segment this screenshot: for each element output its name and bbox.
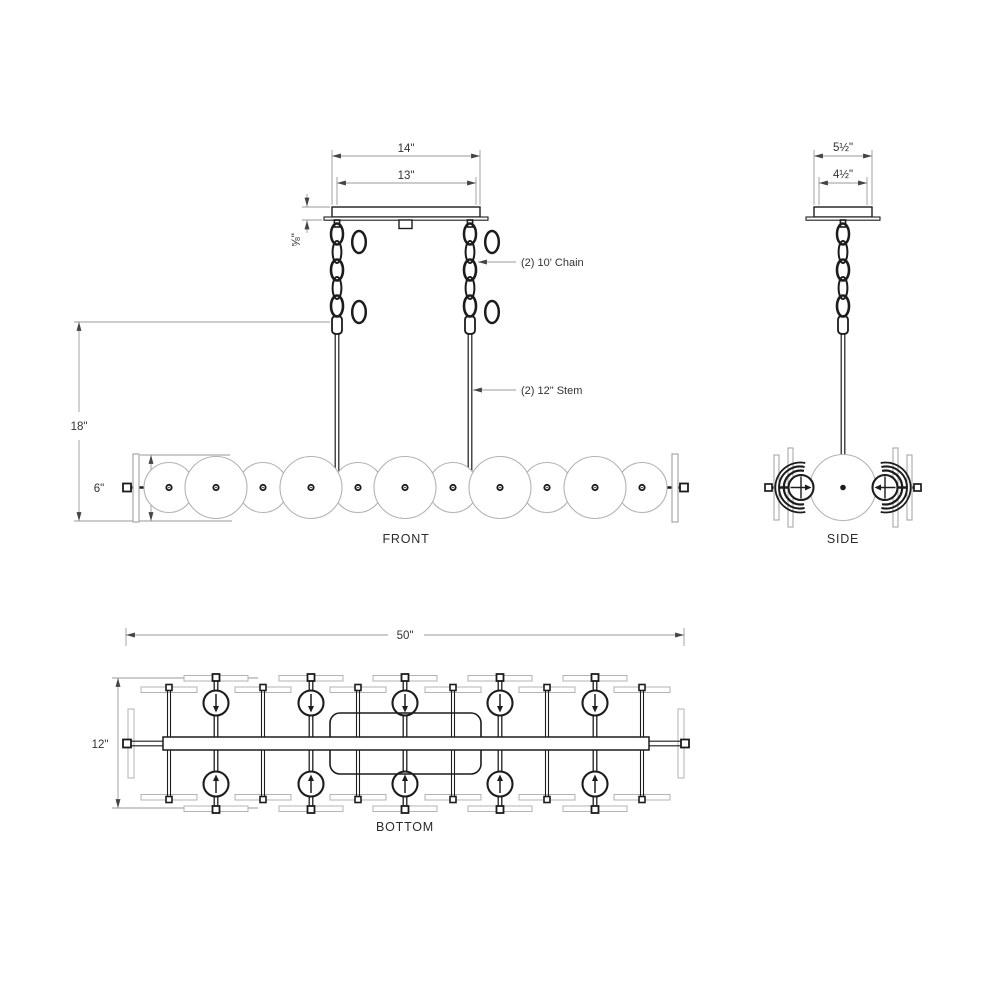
dim-bottom-length: 50" <box>397 630 414 642</box>
drawing-page: (2) 10' Chain (2) 12" Stem <box>0 0 1000 1000</box>
side-fixture-body <box>765 448 921 527</box>
callout-chain: (2) 10' Chain <box>521 257 584 269</box>
front-fixture-body <box>123 454 688 522</box>
dim-front-body-height: 6" <box>94 483 104 495</box>
end-finial-right <box>680 484 688 492</box>
bottom-view-label: BOTTOM <box>376 820 434 834</box>
technical-drawing-chandelier: (2) 10' Chain (2) 12" Stem <box>0 0 1000 1000</box>
dim-front-overall-drop: 18" <box>71 421 88 433</box>
dim-bottom-width: 12" <box>92 739 109 751</box>
canopy-mount-tab <box>399 220 412 229</box>
end-disc-right <box>672 454 678 522</box>
end-finial-left <box>123 484 131 492</box>
bottom-end-finial-right <box>681 740 689 748</box>
side-end-finial-left <box>765 484 772 491</box>
dim-front-canopy-outer: 14" <box>398 143 415 155</box>
bottom-end-finial-left <box>123 740 131 748</box>
end-disc-left <box>133 454 139 522</box>
side-center-screw <box>840 485 846 491</box>
side-end-finial-right <box>914 484 921 491</box>
dim-front-canopy-inner: 13" <box>398 170 415 182</box>
side-canopy <box>806 207 880 220</box>
dim-front-canopy-height: ⅝" <box>291 233 303 247</box>
callout-stem: (2) 12" Stem <box>521 385 582 397</box>
dim-side-canopy-inner: 4½" <box>833 169 853 181</box>
side-view-label: SIDE <box>827 532 859 546</box>
bottom-spine <box>123 737 689 750</box>
front-view-label: FRONT <box>382 532 429 546</box>
dim-side-canopy-outer: 5½" <box>833 142 853 154</box>
